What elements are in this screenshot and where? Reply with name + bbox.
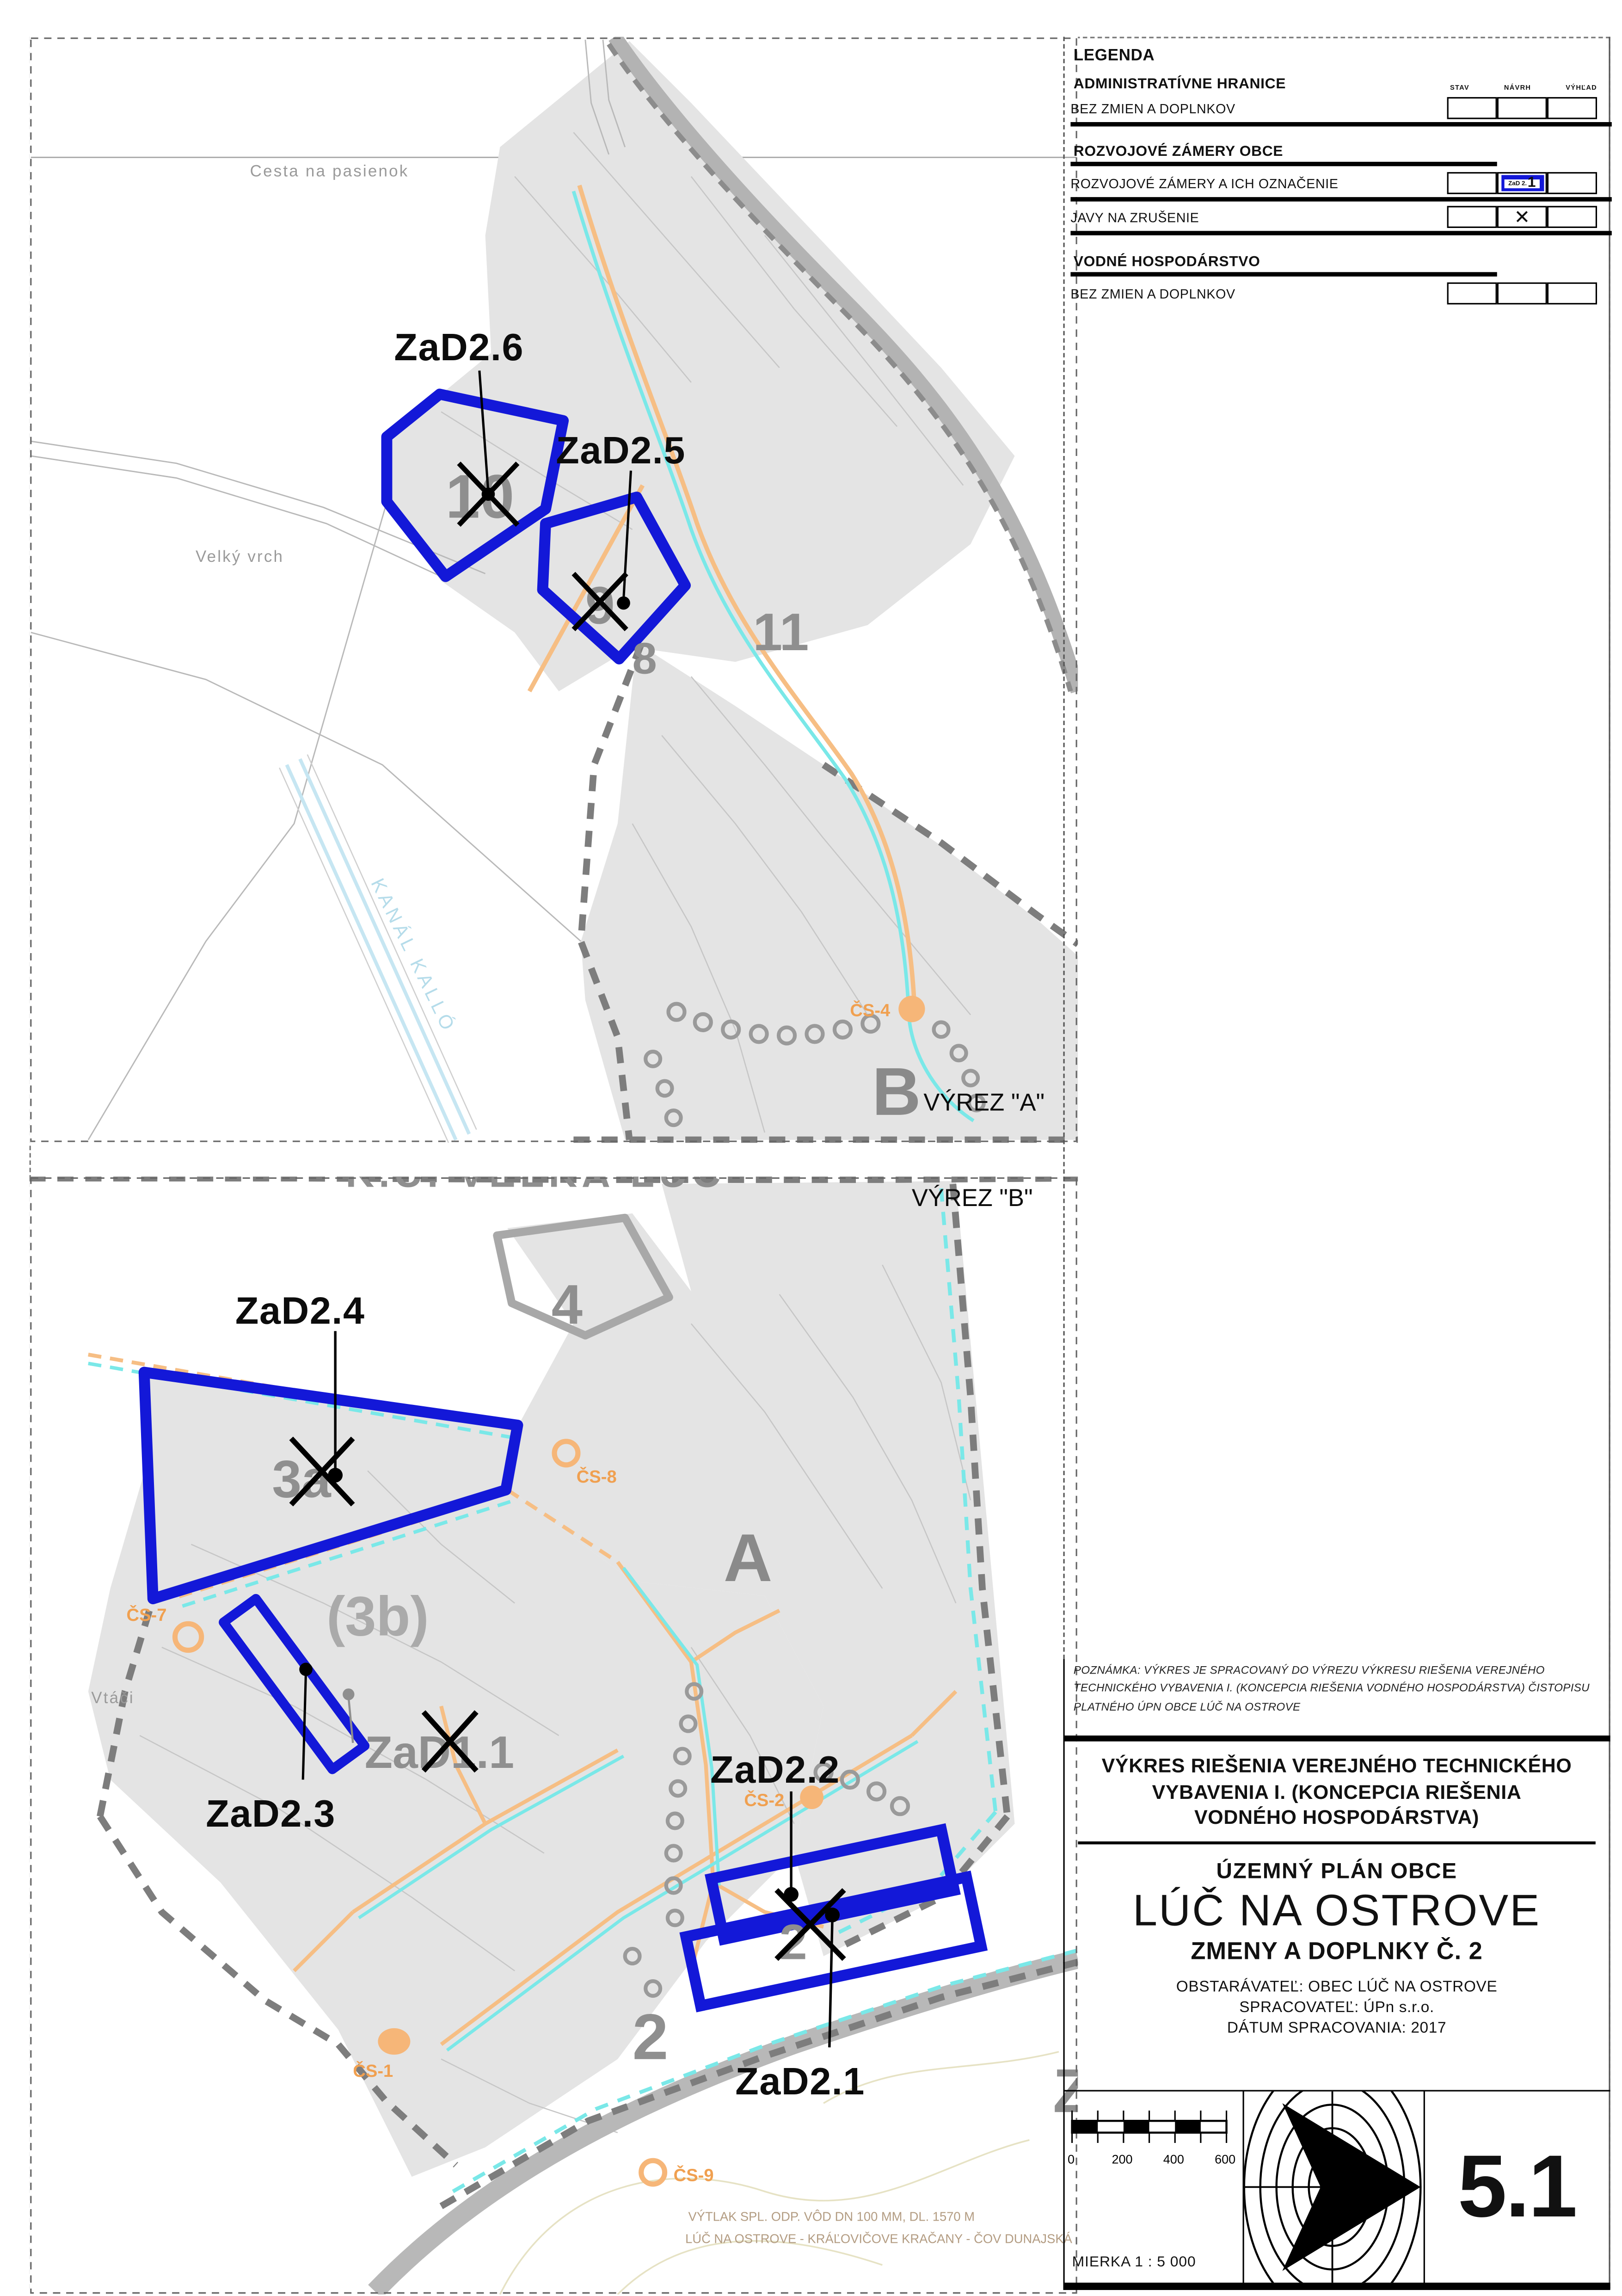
map-panel-b: 4 3a ZaD2.4 (3b) ČS-8 ČS-7 Vtáči ZaD2.3 … (30, 1176, 1078, 2294)
drawing-title-line2: VYBAVENIA I. (KONCEPCIA RIEŠENIA (1065, 1779, 1609, 1805)
zone-4-number: 4 (552, 1273, 583, 1336)
legend-row-cells: ZaD 2.1 (1447, 172, 1597, 194)
scale-tick-600: 600 (1215, 2153, 1235, 2167)
cs2-label: ČS-2 (744, 1790, 784, 1810)
legend-row-label: BEZ ZMIEN A DOPLNKOV (1070, 101, 1235, 116)
drawing-title-line3: VODNÉHO HOSPODÁRSTVA) (1065, 1805, 1609, 1831)
author-line: SPRACOVATEĽ: ÚPn s.r.o. (1065, 1999, 1609, 2016)
zad2-2-label: ZaD2.2 (710, 1748, 840, 1791)
zad2-5-label: ZaD2.5 (556, 429, 686, 472)
cs9-label: ČS-9 (674, 2165, 714, 2185)
zad-symbol-number: 1 (1528, 176, 1536, 191)
note-block: POZNÁMKA: VÝKRES JE SPRACOVANÝ DO VÝREZU… (1074, 1662, 1603, 1716)
col-navrh: NÁVRH (1504, 84, 1531, 91)
plan-sheet: KANÁL KALLÓ ČS-4 10 9 8 11 (0, 0, 1622, 2296)
zad2-6-label: ZaD2.6 (394, 326, 524, 369)
legend-rule (1070, 197, 1611, 202)
cell-vyhlad (1547, 283, 1597, 305)
cs1-station-icon (378, 2028, 410, 2055)
scale-bar-cell: 0 200 400 600 MIERKA 1 : 5 000 (1063, 2090, 1243, 2283)
pipeline-note-line2: LÚČ NA OSTROVE - KRÁĽOVIČOVE KRAČANY - Č… (685, 2231, 1072, 2246)
cell-navrh: ✕ (1497, 206, 1547, 228)
area-a-letter: A (724, 1520, 773, 1596)
cadastre-label: K.Ú. VEĽKÁ LÚČ (345, 1176, 725, 1195)
col-vyhlad: VÝHĽAD (1566, 84, 1597, 91)
cell-navrh: ZaD 2.1 (1497, 172, 1547, 194)
zone-2-big-number: 2 (633, 2001, 669, 2073)
note-line2: TECHNICKÉHO VYBAVENIA I. (KONCEPCIA RIEŠ… (1074, 1680, 1603, 1698)
zone-3a-number: 3a (272, 1450, 332, 1509)
zad2-1-label: ZaD2.1 (735, 2060, 865, 2103)
note-line3: PLATNÉHO ÚPN OBCE LÚČ NA OSTROVE (1074, 1698, 1603, 1716)
amendment-title: ZMENY A DOPLNKY Č. 2 (1065, 1939, 1609, 1966)
legend-column-headers: STAV NÁVRH VÝHĽAD (1450, 84, 1597, 91)
cell-stav (1447, 97, 1497, 119)
cell-navrh (1497, 283, 1547, 305)
note-line1: POZNÁMKA: VÝKRES JE SPRACOVANÝ DO VÝREZU… (1074, 1662, 1603, 1680)
scale-text: MIERKA 1 : 5 000 (1072, 2255, 1196, 2271)
zad-symbol-text: ZaD 2. (1508, 179, 1527, 187)
legend-rule (1070, 122, 1611, 127)
legend-rule (1070, 231, 1611, 235)
municipality-name: LÚČ NA OSTROVE (1065, 1887, 1609, 1937)
legend-row-label: BEZ ZMIEN A DOPLNKOV (1070, 287, 1235, 302)
legend-row-label: ROZVOJOVÉ ZÁMERY A ICH OZNAČENIE (1070, 177, 1338, 191)
legend-heading-rule (1070, 272, 1497, 276)
main-title-block: ÚZEMNÝ PLÁN OBCE LÚČ NA OSTROVE ZMENY A … (1065, 1850, 1609, 2037)
map-panel-a: KANÁL KALLÓ ČS-4 10 9 8 11 (30, 37, 1078, 1143)
cell-vyhlad (1547, 172, 1597, 194)
legend-section1-heading: ADMINISTRATÍVNE HRANICE (1074, 76, 1286, 92)
column-right-border (1609, 37, 1610, 2289)
north-arrow (1244, 2092, 1422, 2283)
zad2-4-label: ZaD2.4 (235, 1289, 365, 1332)
legend-row-cells: ✕ (1447, 206, 1597, 228)
cs4-station-icon (898, 996, 925, 1022)
legend-section2-heading: ROZVOJOVÉ ZÁMERY OBCE (1074, 144, 1283, 160)
scale-tick-400: 400 (1163, 2153, 1184, 2167)
cell-stav (1447, 283, 1497, 305)
title-divider-rule (1078, 1841, 1596, 1844)
legend-title: LEGENDA (1074, 47, 1155, 65)
drawing-title: VÝKRES RIEŠENIA VEREJNÉHO TECHNICKÉHO VY… (1065, 1753, 1609, 1830)
footer-bottom-rule (1063, 2283, 1610, 2290)
cs1-label: ČS-1 (353, 2060, 393, 2081)
col-stav: STAV (1450, 84, 1469, 91)
sheet-number-cell: 5.1 (1424, 2090, 1610, 2283)
vyrez-b-label: VÝREZ "B" (912, 1185, 1033, 1212)
pipeline-note-line1: VÝTLAK SPL. ODP. VÔD DN 100 MM, DL. 1570… (688, 2210, 975, 2224)
drawing-title-line1: VÝKRES RIEŠENIA VEREJNÉHO TECHNICKÉHO (1065, 1753, 1609, 1779)
cell-stav (1447, 206, 1497, 228)
zad2-3-label: ZaD2.3 (206, 1792, 336, 1835)
zad-area-symbol: ZaD 2.1 (1501, 175, 1543, 191)
area-b-letter: B (872, 1054, 921, 1130)
cancel-x-symbol: ✕ (1514, 207, 1530, 226)
column-divider-dashed (1063, 37, 1065, 1659)
cell-navrh (1497, 97, 1547, 119)
zone-9-number: 9 (585, 576, 615, 635)
hill-label: Velký vrch (196, 548, 284, 566)
cell-stav (1447, 172, 1497, 194)
legend-row-cells (1447, 97, 1597, 119)
date-line: DÁTUM SPRACOVANIA: 2017 (1065, 2019, 1609, 2037)
scale-bar: 0 200 400 600 (1063, 2090, 1243, 2193)
legend-section3-heading: VODNÉ HOSPODÁRSTVO (1074, 254, 1260, 271)
legend-heading-rule (1070, 162, 1497, 166)
vtaci-label: Vtáči (91, 1689, 135, 1707)
road-top-label: Cesta na pasienok (250, 162, 409, 180)
vyrez-a-label: VÝREZ "A" (923, 1089, 1044, 1116)
legend: LEGENDA ADMINISTRATÍVNE HRANICE STAV NÁV… (1070, 41, 1617, 335)
zone-8-number: 8 (633, 634, 657, 683)
legend-row-cells (1447, 283, 1597, 305)
scale-tick-0: 0 (1068, 2153, 1075, 2167)
sheet-number: 5.1 (1458, 2136, 1576, 2237)
client-line: OBSTARÁVATEĽ: OBEC LÚČ NA OSTROVE (1065, 1978, 1609, 1996)
zone-10-number: 10 (446, 462, 515, 531)
cell-vyhlad (1547, 97, 1597, 119)
note-bottom-rule (1063, 1736, 1610, 1742)
scale-tick-200: 200 (1112, 2153, 1132, 2167)
cs8-label: ČS-8 (577, 1466, 617, 1487)
cell-vyhlad (1547, 206, 1597, 228)
zone-11-number: 11 (753, 603, 809, 662)
legend-row-label: JAVY NA ZRUŠENIE (1070, 210, 1199, 225)
doc-type: ÚZEMNÝ PLÁN OBCE (1065, 1859, 1609, 1884)
cs7-label: ČS-7 (127, 1604, 167, 1625)
cs4-label: ČS-4 (850, 1000, 891, 1021)
zone-3b-number: (3b) (326, 1585, 429, 1648)
